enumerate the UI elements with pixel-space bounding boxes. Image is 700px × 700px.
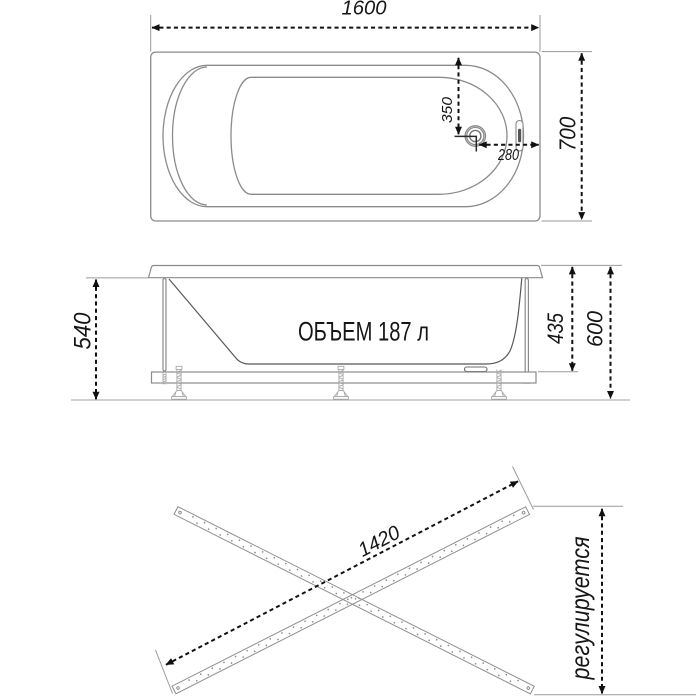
svg-text:1420: 1420 xyxy=(355,522,404,562)
svg-text:280: 280 xyxy=(497,147,519,164)
svg-text:1600: 1600 xyxy=(342,0,387,20)
svg-text:350: 350 xyxy=(439,96,456,123)
svg-text:регулируется: регулируется xyxy=(565,536,595,680)
svg-text:540: 540 xyxy=(70,312,97,350)
svg-text:435: 435 xyxy=(543,312,568,344)
svg-text:ОБЪЕМ 187 л: ОБЪЕМ 187 л xyxy=(298,317,429,347)
svg-text:600: 600 xyxy=(583,310,608,347)
svg-text:700: 700 xyxy=(555,117,581,152)
